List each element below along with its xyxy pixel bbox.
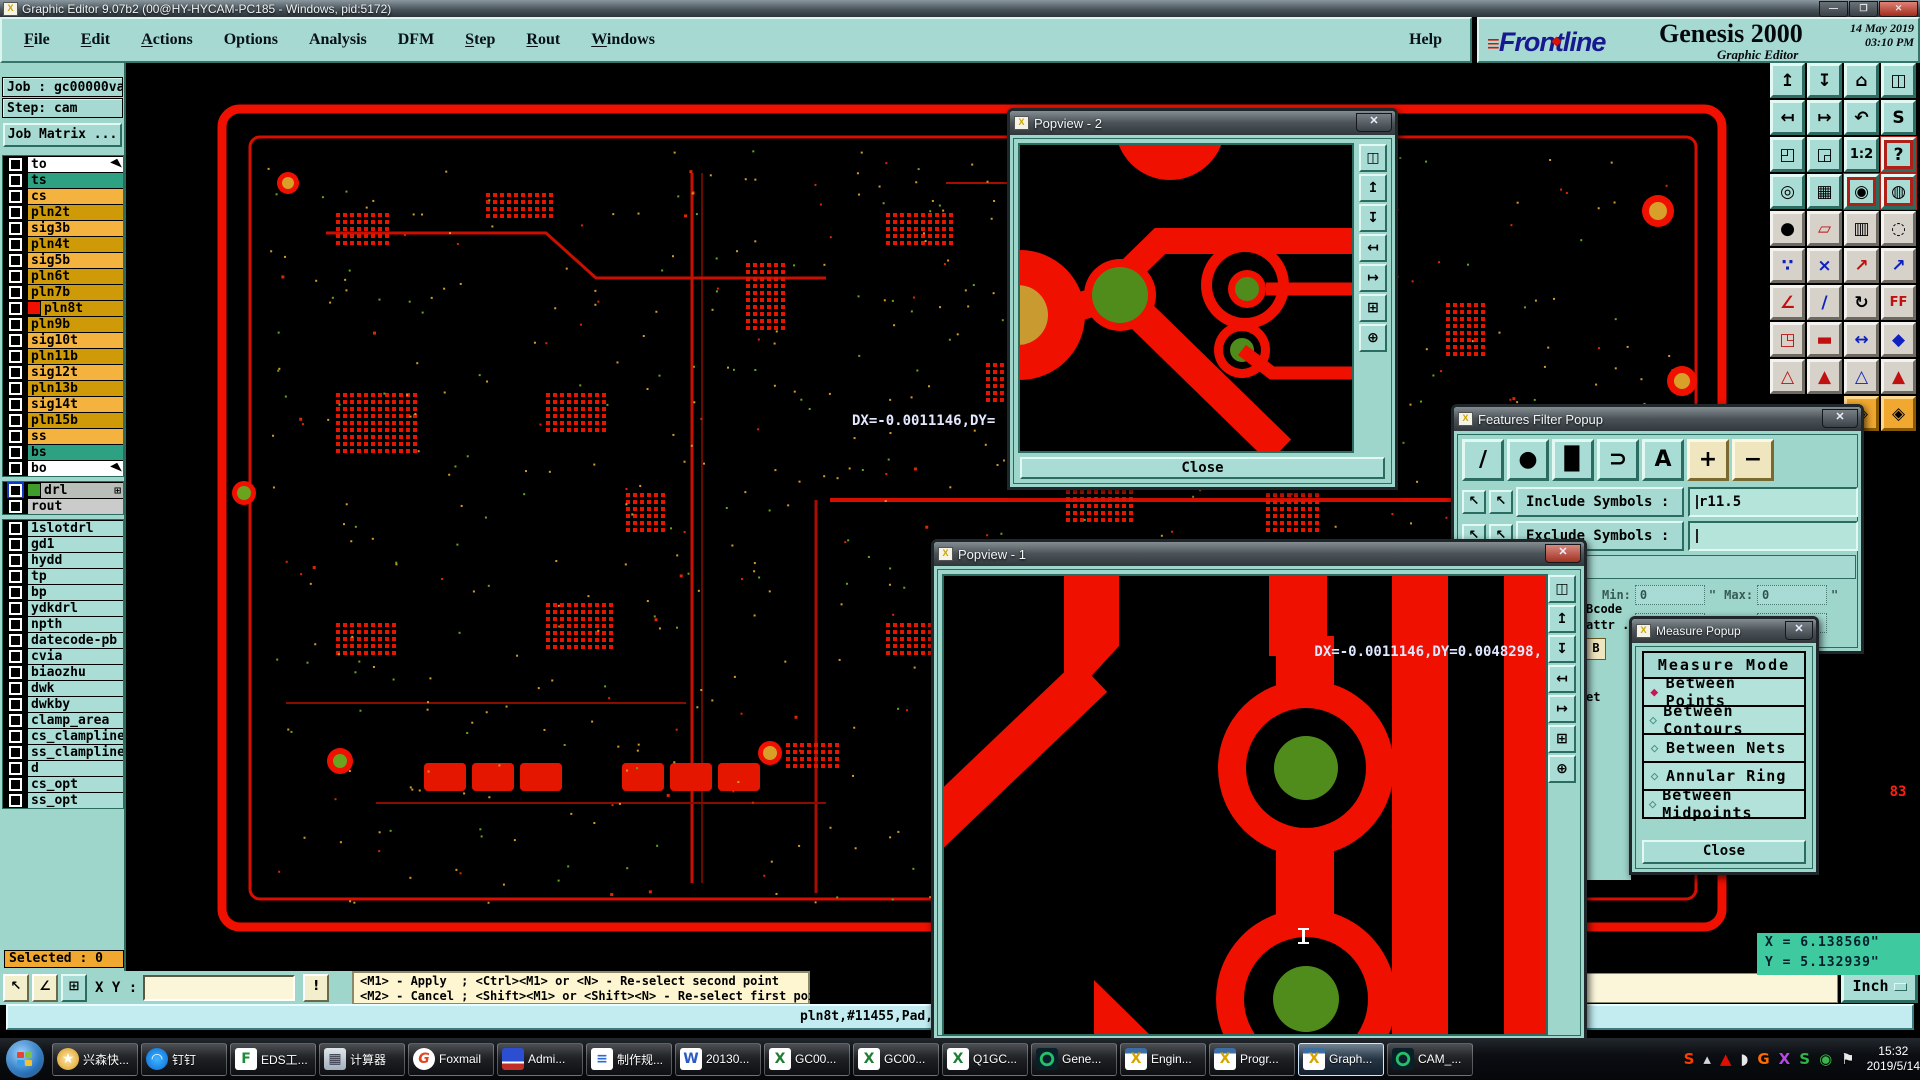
layer-checkbox[interactable]	[3, 300, 28, 316]
popview1-pan-left-icon[interactable]: ↤	[1548, 665, 1576, 693]
layer-row-cs[interactable]: cs	[3, 188, 123, 204]
radio-diamond-icon: ◇	[1644, 797, 1662, 812]
popview1-pan-down-icon[interactable]: ↧	[1548, 635, 1576, 663]
measure-popup-titlebar[interactable]: X Measure Popup ✕	[1632, 619, 1816, 643]
unit-mark: "	[1709, 588, 1716, 602]
layer-checkbox[interactable]	[3, 188, 28, 204]
include-pick-add-icon[interactable]: ↖	[1489, 490, 1513, 514]
layer-checkbox[interactable]	[3, 444, 28, 460]
layer-name[interactable]: ss_opt	[28, 792, 123, 808]
layer-name[interactable]: pln2t	[28, 204, 123, 220]
layer-row-ss_opt[interactable]: ss_opt	[3, 792, 123, 808]
layer-name[interactable]: cvia	[28, 648, 123, 664]
layer-name[interactable]: sig12t	[28, 364, 123, 380]
menu-windows[interactable]: Windows	[591, 31, 655, 49]
layer-checkbox[interactable]	[3, 648, 28, 664]
zoom-window-button[interactable]: ◲	[1807, 137, 1842, 172]
app-x-icon: X	[1636, 624, 1651, 638]
symbol-move-button[interactable]: ◳	[1770, 322, 1805, 357]
filter-exclude-icon[interactable]: −	[1732, 439, 1774, 481]
angle-mode-icon[interactable]: ∠	[32, 974, 58, 1002]
layer-name[interactable]: sig3b	[28, 220, 123, 236]
layer-sidebar: Job : gc00000va0 Step: cam Job Matrix ..…	[0, 63, 126, 1003]
popview2-popout-icon[interactable]: ◫	[1359, 144, 1387, 172]
slope-line-button[interactable]: /	[1807, 285, 1842, 320]
layer-checkbox[interactable]	[3, 680, 28, 696]
checkbox-icon	[9, 238, 22, 251]
taskbar-item-admi[interactable]: Admi...	[497, 1043, 583, 1076]
pan-right-button[interactable]: ↦	[1807, 100, 1842, 135]
layer-name[interactable]: pln15b	[28, 412, 123, 428]
measure-option-label: Between Contours	[1663, 702, 1804, 738]
pan-left-button[interactable]: ↤	[1770, 100, 1805, 135]
point-snap-button[interactable]: ↗	[1881, 248, 1916, 283]
layer-stoplight-2-button[interactable]: ◍	[1881, 174, 1916, 209]
layer-name[interactable]: to	[28, 156, 123, 172]
transform-feature-button[interactable]: ▱	[1807, 211, 1842, 246]
layer-checkbox[interactable]	[3, 204, 28, 220]
popview1-canvas[interactable]: DX=-0.0011146,DY=0.0048298,	[942, 574, 1548, 1036]
popview2-pan-left-icon[interactable]: ↤	[1359, 234, 1387, 262]
app-x-icon: X	[1014, 116, 1029, 130]
selected-count: Selected : 0	[4, 950, 124, 968]
menu-bar: FileEditActionsOptionsAnalysisDFMStepRou…	[0, 17, 1472, 63]
app-x-icon: X	[1458, 412, 1473, 426]
height-check-button[interactable]: ▲	[1807, 359, 1842, 394]
fragment-text: et	[1583, 688, 1631, 704]
xy-input[interactable]	[143, 975, 295, 1001]
popview2-titlebar[interactable]: X Popview - 2 ✕	[1010, 111, 1395, 135]
previous-view-button[interactable]: ↶	[1844, 100, 1879, 135]
delete-feature-button[interactable]: ×	[1807, 248, 1842, 283]
layer-row-pln4t[interactable]: pln4t	[3, 236, 123, 252]
layer-group-misc: 1slotdrlgd1hyddtpbpydkdrlnpthdatecode-pb…	[2, 519, 124, 809]
taskbar-item-label: 兴森快...	[83, 1051, 129, 1068]
layer-name[interactable]: bo	[28, 460, 123, 476]
include-symbols-input[interactable]: r11.5	[1688, 487, 1858, 517]
layer-checkbox[interactable]	[3, 584, 28, 600]
popview2-close-button[interactable]: Close	[1020, 457, 1385, 479]
layer-checkbox[interactable]	[3, 696, 28, 712]
layer-row-pln9b[interactable]: pln9b	[3, 316, 123, 332]
popview2-pan-down-icon[interactable]: ↧	[1359, 204, 1387, 232]
layer-row-cs_opt[interactable]: cs_opt	[3, 776, 123, 792]
checkbox-icon	[9, 730, 22, 743]
layer-checkbox[interactable]	[3, 616, 28, 632]
toolbar-row: ∠/↻FF	[1770, 285, 1920, 320]
layer-row-ydkdrl[interactable]: ydkdrl	[3, 600, 123, 616]
layer-row-sig14t[interactable]: sig14t	[3, 396, 123, 412]
layer-row-1slotdrl[interactable]: 1slotdrl	[3, 520, 123, 536]
point-to-point-button[interactable]: ↗	[1844, 248, 1879, 283]
layer-name[interactable]: d	[28, 760, 123, 776]
select-area-button[interactable]: ◌	[1881, 211, 1916, 246]
layer-checkbox[interactable]	[3, 776, 28, 792]
layer-checkbox[interactable]	[3, 664, 28, 680]
taskbar-item-label: 钉钉	[172, 1051, 196, 1068]
layer-name[interactable]: sig5b	[28, 252, 123, 268]
filter-arcs-icon[interactable]: ⊃	[1597, 439, 1639, 481]
layer-name[interactable]: sig14t	[28, 396, 123, 412]
layer-checkbox[interactable]	[3, 482, 28, 498]
layer-checkbox[interactable]	[3, 380, 28, 396]
line-width-button[interactable]: ▬	[1807, 322, 1842, 357]
exclude-symbols-input[interactable]	[1688, 521, 1858, 551]
popview2-zoom-fit-icon[interactable]: ⊞	[1359, 294, 1387, 322]
taskbar-item-cam[interactable]: CAM_...	[1387, 1043, 1473, 1076]
layer-row-dwk[interactable]: dwk	[3, 680, 123, 696]
layer-row-pln13b[interactable]: pln13b	[3, 380, 123, 396]
popview1-pan-right-icon[interactable]: ↦	[1548, 695, 1576, 723]
layer-name[interactable]: sig10t	[28, 332, 123, 348]
pan-up-button[interactable]: ↥	[1770, 63, 1805, 98]
layer-name[interactable]: npth	[28, 616, 123, 632]
measure-option-between-midpoints[interactable]: ◇Between Midpoints	[1644, 791, 1804, 817]
layer-checkbox[interactable]	[3, 600, 28, 616]
layer-name[interactable]: biaozhu	[28, 664, 123, 680]
peak-measure-button[interactable]: △	[1844, 359, 1879, 394]
layer-row-sig12t[interactable]: sig12t	[3, 364, 123, 380]
menu-rout[interactable]: Rout	[526, 31, 560, 49]
job-matrix-button[interactable]: Job Matrix ...	[3, 123, 122, 147]
popview1-pan-up-icon[interactable]: ↥	[1548, 605, 1576, 633]
layer-row-gd1[interactable]: gd1	[3, 536, 123, 552]
layer-checkbox[interactable]	[3, 172, 28, 188]
tray-speaker-icon[interactable]: ◗	[1740, 1050, 1748, 1068]
word-icon: W	[680, 1048, 702, 1070]
taskbar: ★兴森快...◠钉钉FEDS工...▦计算器GFoxmailAdmi...≡制作…	[0, 1038, 1920, 1080]
layer-name[interactable]: gd1	[28, 536, 123, 552]
system-tray: S▴▲◗GXS◉⚑	[1684, 1050, 1861, 1068]
tray-arrow-icon[interactable]: ▴	[1703, 1050, 1711, 1068]
zoom-ratio-button[interactable]: 1:2	[1844, 137, 1879, 172]
tray-sogou-icon[interactable]: S	[1684, 1050, 1695, 1068]
layer-row-ss[interactable]: ss	[3, 428, 123, 444]
view-sequence-button[interactable]: S	[1881, 100, 1916, 135]
layer-name[interactable]: cs_opt	[28, 776, 123, 792]
layer-name[interactable]: ss_clampline	[28, 744, 123, 760]
popview1-zoom-fit-icon[interactable]: ⊞	[1548, 725, 1576, 753]
zoom-fit-button[interactable]: ◰	[1770, 137, 1805, 172]
filter-lines-icon[interactable]: ∕	[1462, 439, 1504, 481]
layer-checkbox[interactable]	[3, 396, 28, 412]
checkbox-icon	[9, 682, 22, 695]
layer-name[interactable]: clamp_area	[28, 712, 123, 728]
measure-popup-close-icon[interactable]: ✕	[1785, 621, 1813, 640]
layer-row-ss_clampline[interactable]: ss_clampline	[3, 744, 123, 760]
layer-row-pln11b[interactable]: pln11b	[3, 348, 123, 364]
layer-row-ts[interactable]: ts	[3, 172, 123, 188]
menu-help[interactable]: Help	[1409, 31, 1442, 49]
layer-name[interactable]: cs	[28, 188, 123, 204]
layer-row-pln2t[interactable]: pln2t	[3, 204, 123, 220]
taskbar-item-progr[interactable]: XProgr...	[1209, 1043, 1295, 1076]
window-title: Graphic Editor 9.07b2 (00@HY-HYCAM-PC185…	[22, 2, 391, 16]
max-width-input[interactable]: 0	[1757, 585, 1827, 605]
popview1-title: Popview - 1	[958, 547, 1026, 562]
layer-group-board: totscspln2tsig3bpln4tsig5bpln6tpln7bpln8…	[2, 155, 124, 477]
layer-row-bo[interactable]: bo	[3, 460, 123, 476]
layer-row-bp[interactable]: bp	[3, 584, 123, 600]
minimize-button[interactable]: —	[1819, 1, 1848, 17]
layer-checkbox[interactable]	[3, 156, 28, 172]
tray-foxmail-icon[interactable]: G	[1757, 1050, 1769, 1068]
layer-name[interactable]: drl⊞	[41, 482, 123, 498]
layer-checkbox[interactable]	[3, 268, 28, 284]
taskbar-item-eds[interactable]: FEDS工...	[230, 1043, 316, 1076]
app-x-icon: X	[938, 547, 953, 561]
pick-point-icon[interactable]: ↖	[3, 974, 29, 1002]
layer-row-drl[interactable]: drl⊞	[3, 482, 123, 498]
layer-checkbox[interactable]	[3, 498, 28, 514]
popview1-titlebar[interactable]: X Popview - 1 ✕	[934, 542, 1584, 566]
checkbox-icon	[9, 484, 22, 497]
taskbar-item-gene[interactable]: Gene...	[1031, 1043, 1117, 1076]
layer-name[interactable]: pln9b	[28, 316, 123, 332]
menu-dfm[interactable]: DFM	[398, 31, 434, 49]
layer-checkbox[interactable]	[3, 412, 28, 428]
layer-row-to[interactable]: to	[3, 156, 123, 172]
features-filter-titlebar[interactable]: X Features Filter Popup ✕	[1454, 407, 1861, 431]
close-button[interactable]: ✕	[1879, 1, 1918, 17]
layer-name[interactable]: 1slotdrl	[28, 520, 123, 536]
layer-checkbox[interactable]	[3, 236, 28, 252]
layer-stoplight-1-button[interactable]: ◉	[1844, 174, 1879, 209]
move-feature-button[interactable]: ●	[1770, 211, 1805, 246]
layer-row-cs_clampline[interactable]: cs_clampline	[3, 728, 123, 744]
popview1-close-icon[interactable]: ✕	[1545, 544, 1581, 563]
layer-row-pln15b[interactable]: pln15b	[3, 412, 123, 428]
menu-edit[interactable]: Edit	[81, 31, 110, 49]
split-view-xy-button[interactable]: ◫	[1881, 63, 1916, 98]
popview1-pan-center-icon[interactable]: ⊕	[1548, 755, 1576, 783]
net-route-2-button[interactable]: ◈	[1881, 396, 1916, 431]
popview2-canvas[interactable]	[1018, 143, 1354, 453]
job-label: Job : gc00000va0	[2, 77, 123, 97]
layer-row-pln7b[interactable]: pln7b	[3, 284, 123, 300]
layer-name[interactable]: pln6t	[28, 268, 123, 284]
spacing-measure-button[interactable]: ↔	[1844, 322, 1879, 357]
layer-row-datecode-pb[interactable]: datecode-pb	[3, 632, 123, 648]
layer-checkbox[interactable]	[3, 428, 28, 444]
taskbar-clock[interactable]: 15:32 2019/5/14	[1867, 1044, 1920, 1074]
layer-checkbox[interactable]	[3, 760, 28, 776]
layer-checkbox[interactable]	[3, 284, 28, 300]
taskbar-item-q1gc[interactable]: XQ1GC...	[942, 1043, 1028, 1076]
layer-checkbox[interactable]	[3, 792, 28, 808]
layer-checkbox[interactable]	[3, 332, 28, 348]
taskbar-item-[interactable]: ◠钉钉	[141, 1043, 227, 1076]
layer-row-d[interactable]: d	[3, 760, 123, 776]
layer-name[interactable]: hydd	[28, 552, 123, 568]
unit-dropdown[interactable]: Inch	[1841, 971, 1918, 1003]
menu-step[interactable]: Step	[465, 31, 495, 49]
popview2-pan-up-icon[interactable]: ↥	[1359, 174, 1387, 202]
checkbox-icon	[9, 222, 22, 235]
window-titlebar: X Graphic Editor 9.07b2 (00@HY-HYCAM-PC1…	[0, 0, 1920, 17]
layer-name[interactable]: pln7b	[28, 284, 123, 300]
menu-actions[interactable]: Actions	[141, 31, 193, 49]
checkbox-icon	[9, 570, 22, 583]
measure-ruler-button[interactable]: ▥	[1844, 211, 1879, 246]
layer-checkbox[interactable]	[3, 252, 28, 268]
layer-name[interactable]: ss	[28, 428, 123, 444]
checkbox-icon	[9, 350, 22, 363]
taskbar-item-[interactable]: ≡制作规...	[586, 1043, 672, 1076]
taskbar-item-20130[interactable]: W20130...	[675, 1043, 761, 1076]
fragment-button[interactable]: B	[1586, 638, 1606, 660]
net-points-button[interactable]: ∵	[1770, 248, 1805, 283]
grid-snap-icon[interactable]: ⊞	[61, 974, 87, 1002]
mirror-feature-button[interactable]: FF	[1881, 285, 1916, 320]
shapes-tool-button[interactable]: ◆	[1881, 322, 1916, 357]
layer-checkbox[interactable]	[3, 552, 28, 568]
notification-badge: 83	[1886, 783, 1910, 801]
layer-checkbox[interactable]	[3, 364, 28, 380]
layer-checkbox[interactable]	[3, 460, 28, 476]
start-button[interactable]	[6, 1040, 44, 1078]
checkbox-icon	[9, 158, 22, 171]
command-bang-button[interactable]: !	[303, 974, 329, 1002]
layer-name[interactable]: pln13b	[28, 380, 123, 396]
menu-analysis[interactable]: Analysis	[309, 31, 367, 49]
layer-name[interactable]: rout	[28, 498, 123, 514]
layer-name[interactable]: tp	[28, 568, 123, 584]
layer-row-cvia[interactable]: cvia	[3, 648, 123, 664]
xwin-icon: X	[1125, 1048, 1147, 1070]
setup-tools-button[interactable]: ◎	[1770, 174, 1805, 209]
pan-down-button[interactable]: ↧	[1807, 63, 1842, 98]
frontline-logo: ≡Frontline	[1487, 27, 1605, 58]
layer-row-pln6t[interactable]: pln6t	[3, 268, 123, 284]
layer-name[interactable]: bs	[28, 444, 123, 460]
features-filter-title: Features Filter Popup	[1478, 412, 1603, 427]
taskbar-item-label: EDS工...	[261, 1051, 308, 1068]
command-entry-right[interactable]	[1586, 973, 1838, 1003]
layer-checkbox[interactable]	[3, 744, 28, 760]
taskbar-item-gc00[interactable]: XGC00...	[853, 1043, 939, 1076]
layer-checkbox[interactable]	[3, 632, 28, 648]
layer-name[interactable]: pln4t	[28, 236, 123, 252]
taskbar-item-label: Progr...	[1240, 1052, 1279, 1066]
layer-row-dwkby[interactable]: dwkby	[3, 696, 123, 712]
layer-name[interactable]: pln11b	[28, 348, 123, 364]
layer-name[interactable]: dwk	[28, 680, 123, 696]
layer-name[interactable]: ts	[28, 172, 123, 188]
measure-option-between-nets[interactable]: ◇Between Nets	[1644, 735, 1804, 763]
popview1-popout-icon[interactable]: ◫	[1548, 575, 1576, 603]
filter-text-icon[interactable]: A	[1642, 439, 1684, 481]
toolbar-row: ◳▬↔◆	[1770, 322, 1920, 357]
filter-surfaces-icon[interactable]: ▉	[1552, 439, 1594, 481]
popview2-close-icon[interactable]: ✕	[1356, 113, 1392, 132]
toolbar-row: ◎▦◉◍	[1770, 174, 1920, 209]
peak-arrow-button[interactable]: ▲	[1881, 359, 1916, 394]
layer-row-sig10t[interactable]: sig10t	[3, 332, 123, 348]
layer-checkbox[interactable]	[3, 568, 28, 584]
tray-flag-icon[interactable]: ⚑	[1841, 1050, 1854, 1068]
layer-name[interactable]: cs_clampline	[28, 728, 123, 744]
popview2-pan-center-icon[interactable]: ⊕	[1359, 324, 1387, 352]
angle-measure-button[interactable]: ∠	[1770, 285, 1805, 320]
layer-name[interactable]: dwkby	[28, 696, 123, 712]
menu-options[interactable]: Options	[224, 31, 278, 49]
genesis-icon	[1392, 1048, 1414, 1070]
tray-reader-icon[interactable]: ▲	[1720, 1050, 1732, 1068]
layer-row-npth[interactable]: npth	[3, 616, 123, 632]
measure-close-button[interactable]: Close	[1642, 840, 1806, 864]
include-symbols-label: Include Symbols :	[1516, 487, 1684, 517]
popview2-pan-right-icon[interactable]: ↦	[1359, 264, 1387, 292]
taskbar-item-gc00[interactable]: XGC00...	[764, 1043, 850, 1076]
tray-x-app-icon[interactable]: X	[1779, 1050, 1791, 1068]
layer-row-tp[interactable]: tp	[3, 568, 123, 584]
taskbar-item-graph[interactable]: XGraph...	[1298, 1043, 1384, 1076]
filter-include-icon[interactable]: +	[1687, 439, 1729, 481]
layer-row-pln8t[interactable]: pln8t	[3, 300, 123, 316]
layer-row-bs[interactable]: bs	[3, 444, 123, 460]
home-view-button[interactable]: ⌂	[1844, 63, 1879, 98]
min-width-input[interactable]: 0	[1635, 585, 1705, 605]
layer-name[interactable]: datecode-pb	[28, 632, 123, 648]
include-pick-icon[interactable]: ↖	[1462, 490, 1486, 514]
dingtalk-icon: ◠	[146, 1048, 168, 1070]
filter-pads-icon[interactable]: ●	[1507, 439, 1549, 481]
brand-panel: ≡Frontline Genesis 2000 Graphic Editor 1…	[1477, 17, 1920, 63]
features-filter-close-icon[interactable]: ✕	[1822, 409, 1858, 428]
rotate-feature-button[interactable]: ↻	[1844, 285, 1879, 320]
popview-2-window: X Popview - 2 ✕ ◫↥↧↤↦⊞⊕ Close	[1007, 108, 1398, 490]
taskbar-item-engin[interactable]: XEngin...	[1120, 1043, 1206, 1076]
maximize-button[interactable]: ❐	[1849, 1, 1878, 17]
measure-popup-title: Measure Popup	[1656, 624, 1741, 638]
query-mode-button[interactable]: ?	[1881, 137, 1916, 172]
checkbox-icon	[9, 302, 22, 315]
checkbox-icon	[9, 762, 22, 775]
layer-row-biaozhu[interactable]: biaozhu	[3, 664, 123, 680]
layer-name[interactable]: ydkdrl	[28, 600, 123, 616]
layer-checkbox[interactable]	[3, 536, 28, 552]
profile-check-button[interactable]: △	[1770, 359, 1805, 394]
layer-row-clamp_area[interactable]: clamp_area	[3, 712, 123, 728]
taskbar-item-[interactable]: ★兴森快...	[52, 1043, 138, 1076]
measure-option-between-contours[interactable]: ◇Between Contours	[1644, 707, 1804, 735]
popview-1-window: X Popview - 1 ✕ DX=-0.0011146,DY=0.00482…	[931, 539, 1587, 1042]
layer-checkbox[interactable]	[3, 728, 28, 744]
grid-toggle-button[interactable]: ▦	[1807, 174, 1842, 209]
checkbox-icon	[9, 462, 22, 475]
taskbar-item-foxmail[interactable]: GFoxmail	[408, 1043, 494, 1076]
layer-name[interactable]: bp	[28, 584, 123, 600]
layer-checkbox[interactable]	[3, 220, 28, 236]
menu-file[interactable]: File	[24, 31, 50, 49]
tray-s-app-icon[interactable]: S	[1799, 1050, 1810, 1068]
taskbar-item-label: GC00...	[795, 1052, 836, 1066]
layer-row-rout[interactable]: rout	[3, 498, 123, 514]
layer-name[interactable]: pln8t	[41, 300, 123, 316]
taskbar-item-[interactable]: ▦计算器	[319, 1043, 405, 1076]
layer-row-hydd[interactable]: hydd	[3, 552, 123, 568]
layer-row-sig3b[interactable]: sig3b	[3, 220, 123, 236]
checkbox-icon	[9, 190, 22, 203]
layer-checkbox[interactable]	[3, 712, 28, 728]
layer-row-sig5b[interactable]: sig5b	[3, 252, 123, 268]
tray-shield-icon[interactable]: ◉	[1819, 1050, 1832, 1068]
layer-checkbox[interactable]	[3, 348, 28, 364]
layer-checkbox[interactable]	[3, 520, 28, 536]
frontline-marks-icon: ≡	[1487, 31, 1498, 56]
layer-checkbox[interactable]	[3, 316, 28, 332]
